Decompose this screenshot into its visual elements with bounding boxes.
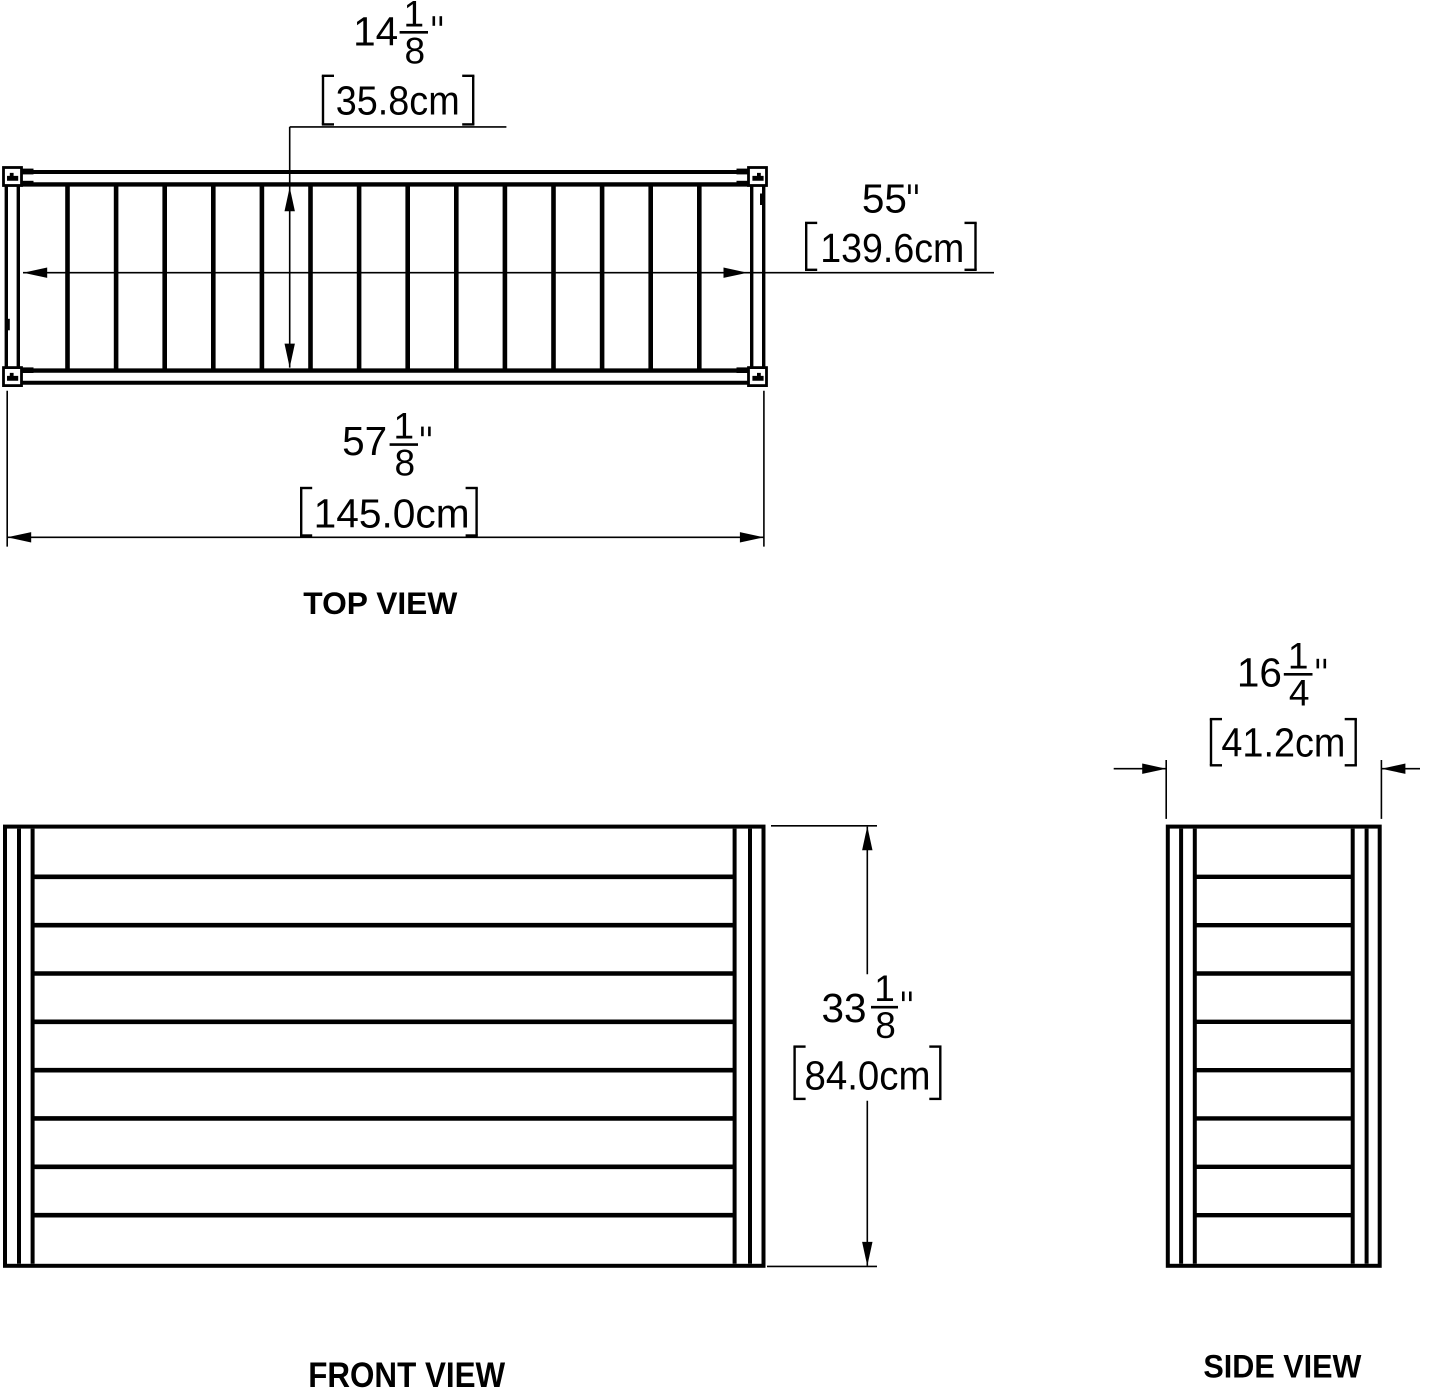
svg-text:1: 1 — [404, 0, 425, 34]
svg-text:33: 33 — [821, 985, 866, 1031]
svg-text:TOP VIEW: TOP VIEW — [303, 585, 457, 621]
svg-text:8: 8 — [405, 30, 426, 71]
svg-text:8: 8 — [875, 1005, 896, 1046]
svg-text:8: 8 — [395, 443, 416, 484]
svg-text:84.0cm: 84.0cm — [805, 1052, 931, 1098]
svg-text:1: 1 — [874, 968, 895, 1009]
svg-text:145.0cm: 145.0cm — [314, 491, 470, 537]
svg-text:FRONT VIEW: FRONT VIEW — [308, 1356, 505, 1391]
svg-text:1: 1 — [1288, 635, 1309, 676]
svg-text:14: 14 — [353, 9, 398, 55]
svg-text:57: 57 — [342, 418, 387, 464]
svg-text:1: 1 — [394, 406, 415, 447]
svg-text:16: 16 — [1237, 649, 1282, 695]
svg-text:4: 4 — [1289, 672, 1310, 713]
svg-text:55: 55 — [862, 176, 907, 222]
svg-text:41.2cm: 41.2cm — [1221, 719, 1345, 765]
svg-text:SIDE VIEW: SIDE VIEW — [1203, 1349, 1361, 1385]
svg-text:139.6cm: 139.6cm — [820, 225, 964, 271]
svg-text:35.8cm: 35.8cm — [336, 78, 460, 124]
